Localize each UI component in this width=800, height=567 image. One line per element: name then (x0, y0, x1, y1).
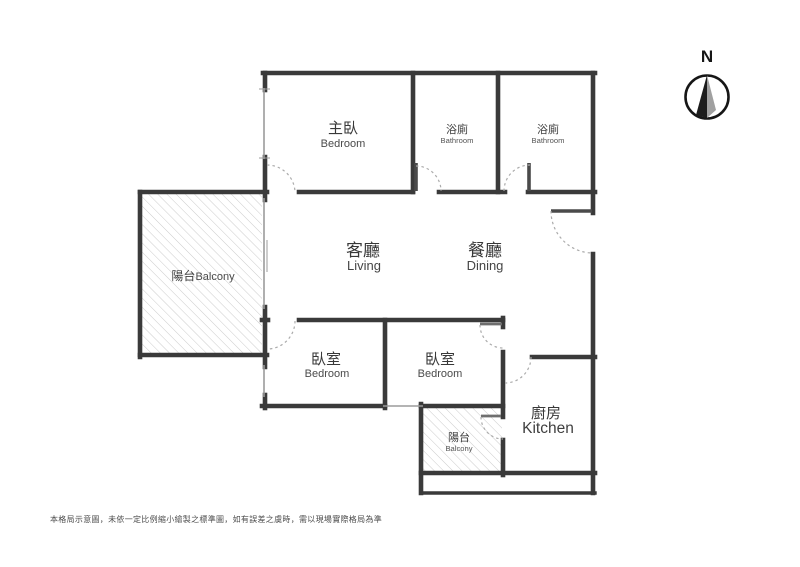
bedroom3-label-en: Bedroom (418, 368, 463, 380)
bathroom1-door-arc (416, 166, 441, 191)
room-label-bedroom-2: 臥室 Bedroom (305, 351, 350, 380)
floor-plan-page: 主臥 Bedroom 浴廁 Bathroom 浴廁 Bathroom 客廳 Li… (0, 0, 800, 567)
entry-door-arc (551, 211, 593, 253)
bedroom2-label-zh: 臥室 (311, 351, 341, 368)
master-bedroom-label-en: Bedroom (321, 138, 366, 150)
room-label-dining: 餐廳 Dining (467, 241, 504, 273)
room-label-bathroom-1: 浴廁 Bathroom (441, 122, 474, 145)
room-label-balcony-left: 陽台Balcony (171, 268, 235, 283)
balcony-left-label-en: Balcony (195, 271, 235, 283)
door-swing-arcs (267, 165, 593, 439)
bedroom2-door-arc (267, 321, 295, 349)
balcony-rear-label-zh: 陽台 (448, 430, 470, 444)
room-label-bathroom-2: 浴廁 Bathroom (532, 122, 565, 145)
balcony-left-label-zh: 陽台 (171, 268, 195, 283)
room-label-balcony-rear: 陽台 Balcony (445, 430, 472, 453)
bathroom2-door-arc (504, 165, 530, 191)
master-bedroom-door-arc (267, 165, 295, 192)
bedroom3-door-arc (480, 325, 503, 348)
room-label-master-bedroom: 主臥 Bedroom (321, 120, 366, 150)
disclaimer-text: 本格局示意圖，未依一定比例縮小繪製之標準圖，如有誤差之虞時，需以現場實際格局為準 (50, 514, 382, 524)
compass: N (686, 47, 729, 119)
compass-north-label: N (701, 47, 713, 66)
bathroom1-label-en: Bathroom (441, 136, 474, 145)
dining-label-en: Dining (467, 258, 504, 273)
bathroom2-label-en: Bathroom (532, 136, 565, 145)
balcony-rear-label-en: Balcony (445, 444, 472, 453)
kitchen-label-en: Kitchen (522, 420, 574, 437)
floor-plan-drawing: 主臥 Bedroom 浴廁 Bathroom 浴廁 Bathroom 客廳 Li… (0, 0, 800, 567)
room-label-bedroom-3: 臥室 Bedroom (418, 351, 463, 380)
living-label-en: Living (347, 258, 381, 273)
bedroom2-label-en: Bedroom (305, 368, 350, 380)
bathroom2-label-zh: 浴廁 (537, 122, 559, 136)
bathroom1-label-zh: 浴廁 (446, 122, 468, 136)
svg-text:陽台Balcony: 陽台Balcony (171, 268, 235, 283)
master-bedroom-label-zh: 主臥 (328, 120, 358, 137)
kitchen-door-arc (505, 357, 531, 383)
room-label-living: 客廳 Living (346, 241, 381, 273)
bedroom3-label-zh: 臥室 (425, 351, 455, 368)
room-label-kitchen: 廚房 Kitchen (522, 404, 574, 437)
